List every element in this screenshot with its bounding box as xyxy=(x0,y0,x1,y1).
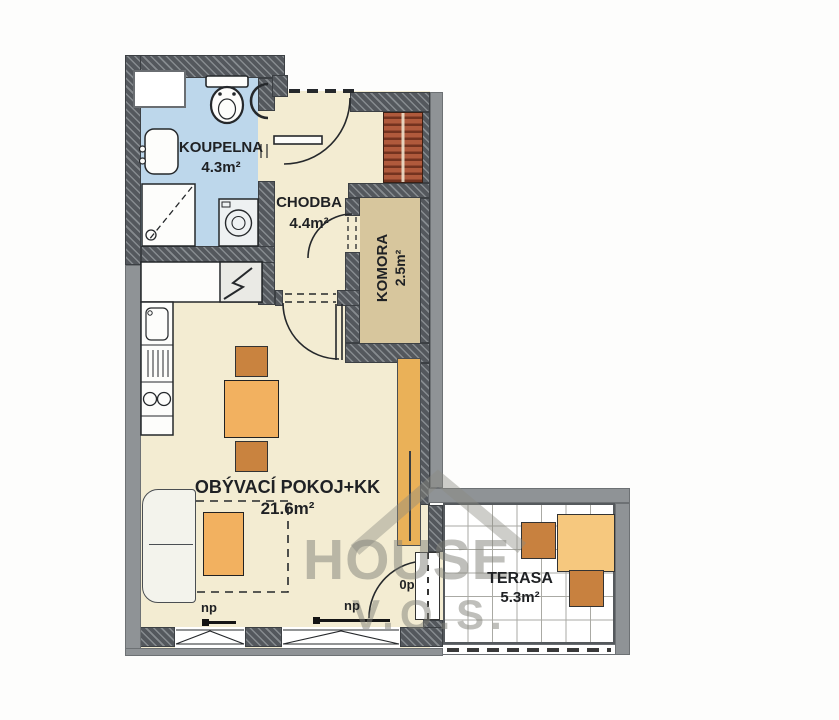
wall-bottom-b xyxy=(245,627,282,647)
dining-chair xyxy=(235,441,268,472)
np-bar-right xyxy=(313,617,320,624)
wall-terrace-top xyxy=(428,488,630,503)
railing-dashes xyxy=(447,648,611,652)
annotation-np-left: np xyxy=(195,601,223,616)
window-opening-right xyxy=(282,627,400,648)
wall-terrace-right xyxy=(615,503,630,655)
room-area-bathroom: 4.3m² xyxy=(156,159,286,176)
wall-bottom-exterior xyxy=(125,648,443,656)
terrace-chair xyxy=(521,522,556,559)
room-label-storage: KOMORA 2.5m² xyxy=(316,208,466,328)
terrace-railing xyxy=(443,644,615,655)
wardrobe-door-line xyxy=(409,451,411,541)
sofa-cushion-divider xyxy=(149,544,193,545)
np-bar-right-line xyxy=(320,619,390,622)
outside-patch xyxy=(283,55,430,91)
wall-closet-right xyxy=(422,112,430,183)
wall-living-right xyxy=(420,363,430,505)
wall-entrance-stub xyxy=(272,75,288,97)
room-label-terrace: TERASA xyxy=(455,570,585,588)
np-bar-left-line xyxy=(209,621,236,624)
np-bar-left xyxy=(202,619,209,626)
hall-closet xyxy=(383,112,423,183)
storage-name: KOMORA xyxy=(374,234,391,302)
wall-bath-bottom xyxy=(141,246,275,263)
room-label-living: OBÝVACÍ POKOJ+KK xyxy=(170,477,405,498)
floor-plan: HOUSE V.O.S. KOUPELNA 4.3m² CHODBA 4.4m²… xyxy=(0,0,839,720)
storage-area: 2.5m² xyxy=(392,250,408,287)
wall-bottom-c xyxy=(400,627,443,647)
wall-hall-living-a xyxy=(275,290,283,306)
window-opening-left xyxy=(175,627,245,648)
room-label-bathroom: KOUPELNA xyxy=(156,139,286,156)
wall-left-lower xyxy=(125,265,141,656)
wall-terracedoor-top xyxy=(428,505,443,552)
annotation-0p: 0p xyxy=(392,578,422,593)
coffee-table xyxy=(203,512,244,576)
room-area-terrace: 5.3m² xyxy=(455,589,585,606)
dining-table xyxy=(224,380,279,438)
wall-top-right xyxy=(350,92,430,112)
dining-chair xyxy=(235,346,268,377)
room-area-living: 21.6m² xyxy=(170,499,405,519)
annotation-np-right: np xyxy=(338,599,366,614)
bathroom-niche xyxy=(133,70,186,108)
terrace-table xyxy=(557,514,615,572)
